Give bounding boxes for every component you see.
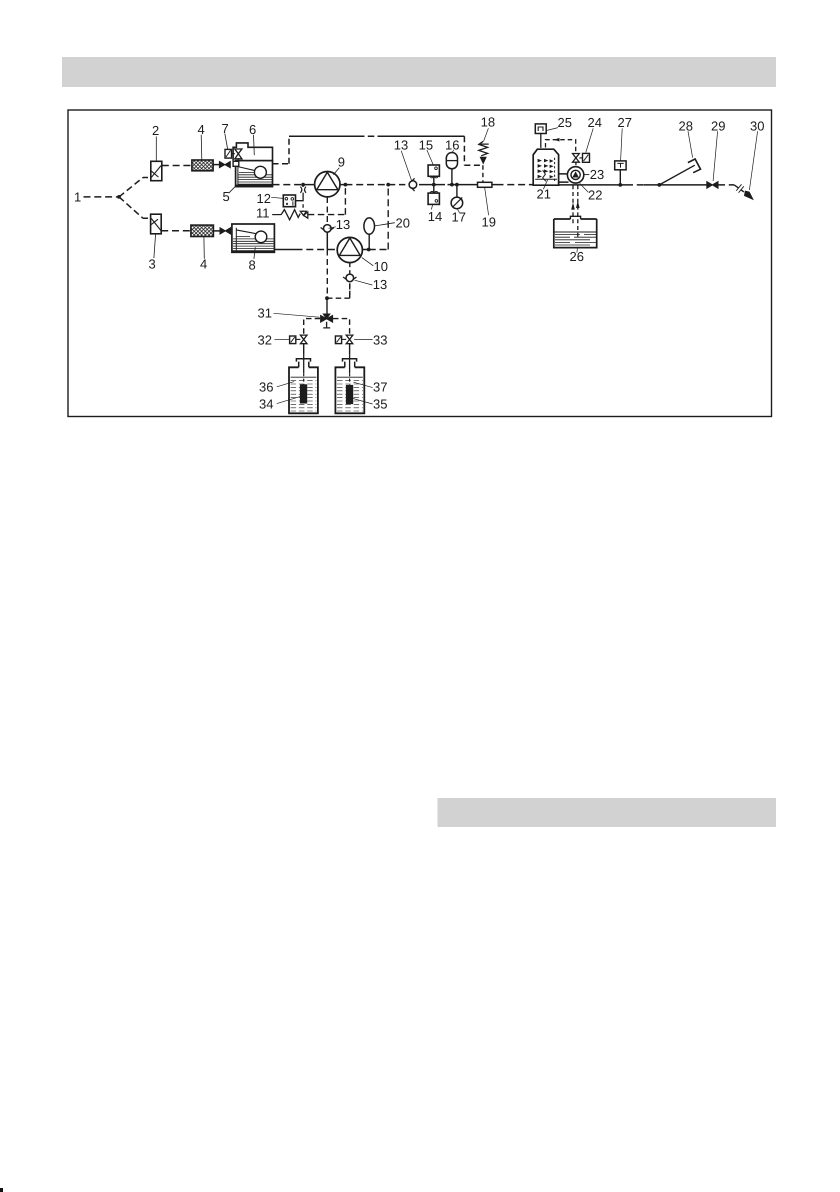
svg-text:16: 16 xyxy=(445,138,459,153)
svg-text:12: 12 xyxy=(257,191,271,206)
svg-text:11: 11 xyxy=(256,206,270,221)
svg-text:34: 34 xyxy=(259,396,273,411)
svg-text:27: 27 xyxy=(618,115,632,130)
svg-text:3: 3 xyxy=(149,257,156,272)
svg-text:26: 26 xyxy=(570,249,584,264)
svg-text:30: 30 xyxy=(750,119,764,134)
svg-text:23: 23 xyxy=(590,167,604,182)
svg-text:9: 9 xyxy=(338,154,345,169)
svg-text:4: 4 xyxy=(200,257,207,272)
svg-text:33: 33 xyxy=(373,332,387,347)
svg-text:25: 25 xyxy=(558,115,572,130)
svg-text:37: 37 xyxy=(373,379,387,394)
svg-text:17: 17 xyxy=(452,209,466,224)
svg-text:19: 19 xyxy=(482,215,496,230)
svg-text:1: 1 xyxy=(74,189,81,204)
svg-text:29: 29 xyxy=(711,119,725,134)
svg-text:21: 21 xyxy=(537,187,551,202)
svg-text:7: 7 xyxy=(222,121,229,136)
svg-text:24: 24 xyxy=(588,115,602,130)
svg-text:35: 35 xyxy=(373,396,387,411)
svg-text:14: 14 xyxy=(428,209,442,224)
svg-text:2: 2 xyxy=(152,123,159,138)
svg-text:13: 13 xyxy=(394,138,408,153)
svg-text:36: 36 xyxy=(259,379,273,394)
svg-text:13: 13 xyxy=(373,277,387,292)
svg-text:8: 8 xyxy=(249,257,256,272)
svg-text:31: 31 xyxy=(258,305,272,320)
svg-text:28: 28 xyxy=(679,119,693,134)
svg-text:5: 5 xyxy=(223,189,230,204)
svg-text:20: 20 xyxy=(396,216,410,231)
svg-text:32: 32 xyxy=(258,332,272,347)
svg-text:13: 13 xyxy=(336,217,350,232)
svg-text:15: 15 xyxy=(419,138,433,153)
svg-text:10: 10 xyxy=(374,259,388,274)
svg-text:22: 22 xyxy=(588,188,602,203)
svg-text:18: 18 xyxy=(481,115,495,130)
svg-text:4: 4 xyxy=(198,122,205,137)
svg-text:6: 6 xyxy=(249,122,256,137)
